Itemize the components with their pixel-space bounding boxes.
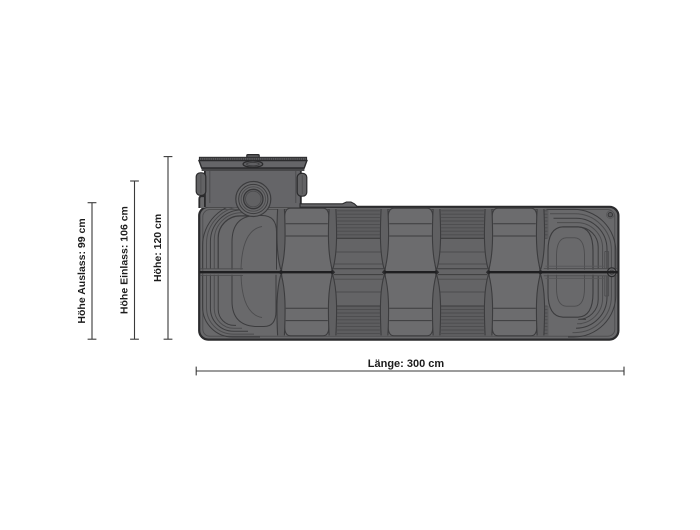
svg-text:Höhe Einlass: 106 cm: Höhe Einlass: 106 cm xyxy=(119,206,131,314)
svg-text:Höhe Auslass: 99 cm: Höhe Auslass: 99 cm xyxy=(76,218,88,323)
svg-text:Höhe: 120 cm: Höhe: 120 cm xyxy=(152,214,164,282)
svg-text:Länge: 300 cm: Länge: 300 cm xyxy=(368,358,445,370)
